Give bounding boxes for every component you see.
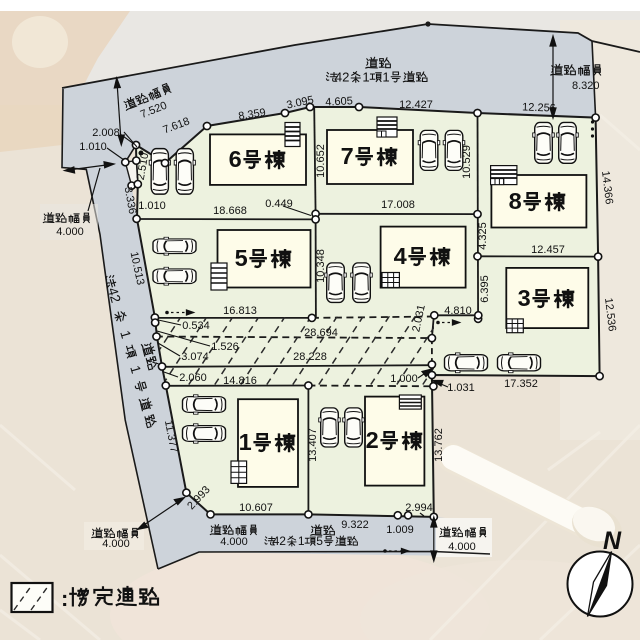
svg-text:0.534: 0.534: [182, 320, 210, 332]
svg-text:1: 1: [298, 534, 305, 548]
svg-text:1: 1: [362, 70, 369, 85]
svg-text:1.000: 1.000: [390, 373, 418, 385]
svg-text::: :: [61, 586, 68, 611]
svg-text:4.000: 4.000: [56, 226, 84, 238]
svg-text:12.427: 12.427: [399, 99, 433, 111]
svg-text:10.652: 10.652: [315, 144, 327, 178]
svg-text:1: 1: [382, 70, 389, 85]
svg-text:7: 7: [341, 143, 354, 169]
svg-text:42: 42: [335, 70, 350, 85]
svg-text:4: 4: [394, 243, 407, 269]
svg-text:9.322: 9.322: [341, 519, 369, 531]
svg-text:6.395: 6.395: [479, 275, 491, 303]
svg-text:16.813: 16.813: [223, 305, 257, 317]
svg-text:13.407: 13.407: [307, 428, 319, 462]
svg-text:18.668: 18.668: [213, 205, 247, 217]
svg-text:2.008: 2.008: [92, 127, 120, 139]
svg-text:1.009: 1.009: [386, 524, 414, 536]
svg-text:42: 42: [273, 534, 287, 548]
svg-text:4.000: 4.000: [102, 538, 130, 550]
svg-text:1.526: 1.526: [211, 341, 239, 353]
svg-text:1.010: 1.010: [79, 141, 107, 153]
svg-text:4.810: 4.810: [444, 305, 472, 317]
svg-text:4.000: 4.000: [220, 536, 248, 548]
svg-text:13.762: 13.762: [433, 428, 445, 462]
svg-text:4.325: 4.325: [477, 222, 489, 250]
svg-text:28.228: 28.228: [293, 351, 327, 363]
svg-text:6: 6: [229, 146, 242, 172]
svg-text:28.694: 28.694: [304, 327, 338, 339]
svg-text:3: 3: [518, 285, 531, 311]
svg-text:2.994: 2.994: [405, 502, 433, 514]
svg-text:1.031: 1.031: [447, 382, 475, 394]
svg-text:2.060: 2.060: [179, 372, 207, 384]
svg-text:10.529: 10.529: [461, 145, 473, 179]
svg-text:5: 5: [316, 534, 323, 548]
svg-text:3.074: 3.074: [181, 351, 209, 363]
svg-text:5: 5: [235, 245, 248, 271]
svg-text:17.352: 17.352: [504, 378, 538, 390]
svg-text:8.320: 8.320: [572, 80, 600, 92]
svg-text:10.607: 10.607: [239, 502, 273, 514]
svg-text:10.348: 10.348: [315, 249, 327, 283]
svg-text:4.000: 4.000: [448, 541, 476, 553]
svg-text:1: 1: [239, 429, 252, 455]
svg-text:2: 2: [366, 427, 379, 453]
svg-text:12.457: 12.457: [531, 244, 565, 256]
svg-text:1.010: 1.010: [138, 200, 166, 212]
svg-text:N: N: [603, 527, 622, 555]
svg-text:14.816: 14.816: [223, 375, 257, 387]
svg-text:17.008: 17.008: [381, 199, 415, 211]
svg-text:4.605: 4.605: [325, 95, 353, 108]
svg-text:8: 8: [509, 188, 522, 214]
